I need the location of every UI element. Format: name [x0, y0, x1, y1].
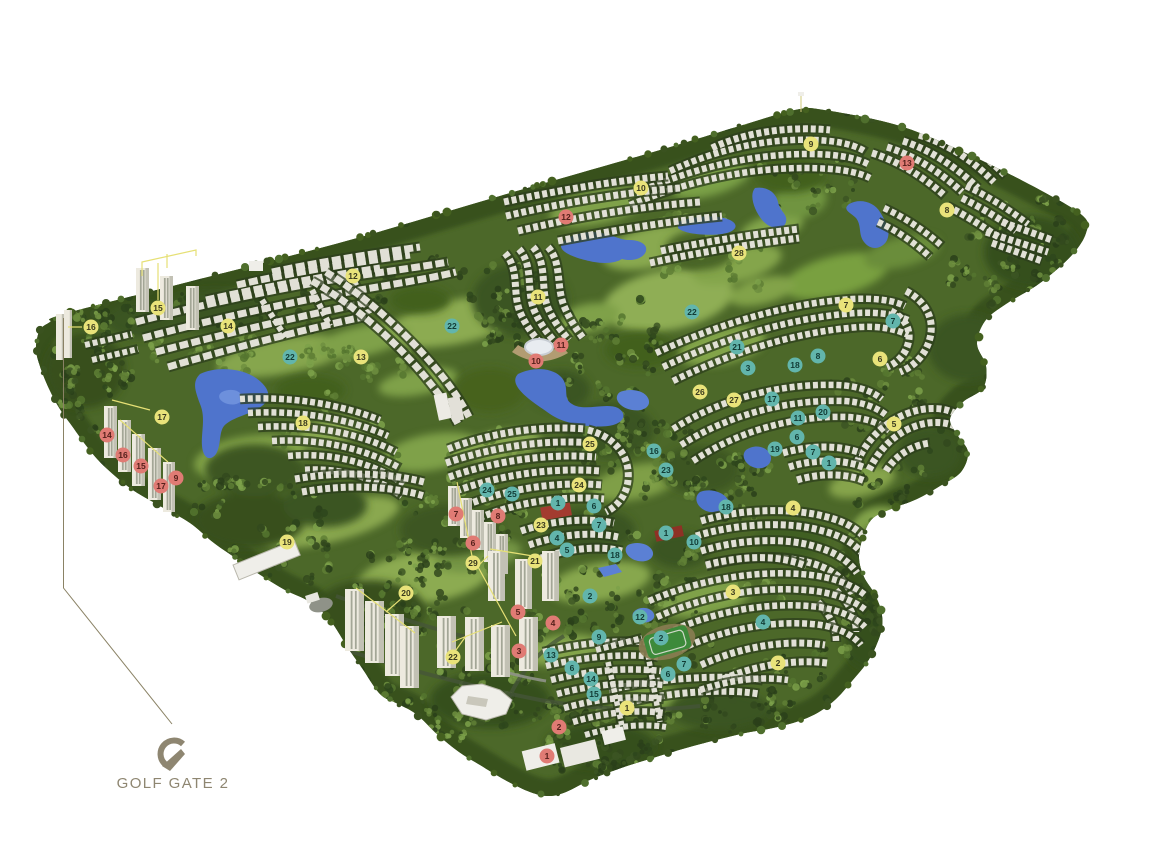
svg-text:9: 9: [809, 139, 814, 149]
svg-text:29: 29: [468, 558, 478, 568]
svg-text:2: 2: [557, 722, 562, 732]
svg-text:4: 4: [551, 618, 556, 628]
svg-text:25: 25: [585, 439, 595, 449]
svg-text:6: 6: [570, 663, 575, 673]
svg-text:6: 6: [878, 354, 883, 364]
svg-text:10: 10: [636, 183, 646, 193]
svg-text:6: 6: [471, 538, 476, 548]
svg-text:10: 10: [531, 356, 541, 366]
svg-text:7: 7: [811, 447, 816, 457]
svg-text:16: 16: [86, 322, 96, 332]
svg-text:7: 7: [682, 659, 687, 669]
svg-text:10: 10: [689, 537, 699, 547]
svg-text:19: 19: [770, 444, 780, 454]
svg-text:7: 7: [891, 316, 896, 326]
svg-text:6: 6: [795, 432, 800, 442]
svg-text:22: 22: [448, 652, 458, 662]
svg-text:21: 21: [530, 556, 540, 566]
svg-text:17: 17: [157, 412, 167, 422]
svg-text:12: 12: [635, 612, 645, 622]
svg-text:23: 23: [661, 465, 671, 475]
svg-text:4: 4: [791, 503, 796, 513]
svg-text:22: 22: [687, 307, 697, 317]
svg-text:9: 9: [597, 632, 602, 642]
svg-text:27: 27: [729, 395, 739, 405]
svg-text:6: 6: [666, 669, 671, 679]
svg-text:13: 13: [356, 352, 366, 362]
svg-text:24: 24: [574, 480, 584, 490]
svg-text:21: 21: [732, 342, 742, 352]
svg-text:5: 5: [516, 607, 521, 617]
svg-text:18: 18: [790, 360, 800, 370]
svg-text:14: 14: [223, 321, 233, 331]
svg-text:8: 8: [816, 351, 821, 361]
svg-text:3: 3: [517, 646, 522, 656]
svg-text:1: 1: [625, 703, 630, 713]
svg-text:28: 28: [734, 248, 744, 258]
svg-text:1: 1: [545, 751, 550, 761]
svg-text:12: 12: [348, 271, 358, 281]
svg-text:25: 25: [507, 489, 517, 499]
svg-text:7: 7: [844, 300, 849, 310]
svg-text:12: 12: [561, 212, 571, 222]
svg-text:14: 14: [102, 430, 112, 440]
svg-text:5: 5: [892, 419, 897, 429]
svg-text:15: 15: [153, 303, 163, 313]
svg-text:18: 18: [721, 502, 731, 512]
svg-text:8: 8: [496, 511, 501, 521]
svg-text:7: 7: [597, 520, 602, 530]
svg-text:19: 19: [282, 537, 292, 547]
svg-text:6: 6: [592, 501, 597, 511]
svg-text:16: 16: [118, 450, 128, 460]
svg-text:2: 2: [659, 633, 664, 643]
svg-text:17: 17: [767, 394, 777, 404]
svg-text:14: 14: [586, 674, 596, 684]
svg-text:20: 20: [401, 588, 411, 598]
svg-text:15: 15: [136, 461, 146, 471]
svg-text:16: 16: [649, 446, 659, 456]
svg-text:7: 7: [454, 509, 459, 519]
svg-text:1: 1: [664, 528, 669, 538]
svg-text:24: 24: [482, 485, 492, 495]
svg-text:18: 18: [610, 550, 620, 560]
svg-text:8: 8: [945, 205, 950, 215]
svg-text:2: 2: [588, 591, 593, 601]
svg-text:18: 18: [298, 418, 308, 428]
svg-text:1: 1: [556, 498, 561, 508]
svg-text:13: 13: [902, 158, 912, 168]
svg-text:17: 17: [156, 481, 166, 491]
svg-text:20: 20: [818, 407, 828, 417]
svg-text:11: 11: [794, 413, 803, 423]
svg-text:3: 3: [746, 363, 751, 373]
svg-text:22: 22: [285, 352, 295, 362]
svg-text:11: 11: [557, 340, 566, 350]
svg-text:11: 11: [534, 292, 543, 302]
svg-text:GOLF GATE 2: GOLF GATE 2: [117, 775, 230, 792]
svg-text:15: 15: [589, 689, 599, 699]
svg-text:4: 4: [555, 533, 560, 543]
svg-text:3: 3: [731, 587, 736, 597]
svg-text:13: 13: [546, 650, 556, 660]
svg-text:4: 4: [761, 617, 766, 627]
svg-text:2: 2: [776, 658, 781, 668]
svg-text:9: 9: [174, 473, 179, 483]
svg-text:26: 26: [695, 387, 705, 397]
svg-text:22: 22: [447, 321, 457, 331]
svg-text:1: 1: [827, 458, 832, 468]
svg-text:5: 5: [565, 545, 570, 555]
svg-text:23: 23: [536, 520, 546, 530]
